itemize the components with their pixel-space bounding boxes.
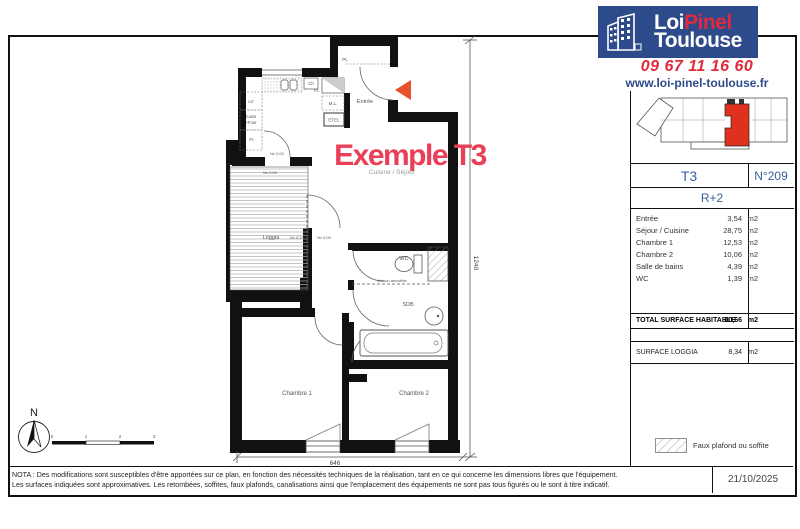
label-nv000-sejour: Nv 0,00 bbox=[263, 170, 278, 175]
unit-type-cell: T3 bbox=[630, 164, 748, 187]
scale-tick-2: 2 bbox=[119, 434, 122, 439]
room-row-chambre2: Chambre 210,06m2 bbox=[636, 250, 788, 261]
bathroom-fixtures bbox=[352, 247, 448, 356]
site-minimap bbox=[633, 90, 793, 158]
room-row-entree: Entrée3,54m2 bbox=[636, 214, 788, 225]
nota-line2: Les surfaces indiquées sont approximativ… bbox=[12, 481, 708, 491]
room-row-chambre1: Chambre 112,53m2 bbox=[636, 238, 788, 249]
label-cuiss: Cuiss bbox=[246, 114, 256, 119]
brand-phone: 09 67 11 16 60 bbox=[614, 58, 780, 76]
date-cell: 21/10/2025 bbox=[713, 467, 793, 492]
building-icon bbox=[604, 10, 646, 54]
label-chambre2: Chambre 2 bbox=[399, 391, 429, 397]
brand-logo: LoiPinel Toulouse bbox=[598, 6, 758, 58]
total-row: TOTAL SURFACE HABITABLE60,66m2 bbox=[636, 317, 788, 328]
nota-text: NOTA : Des modifications sont susceptibl… bbox=[12, 471, 708, 490]
label-fr: Fr. bbox=[249, 137, 254, 142]
label-wc: WC bbox=[399, 256, 408, 262]
scale-tick-1: 1 bbox=[85, 434, 88, 439]
scale-bar: 0 1 2 3 bbox=[51, 434, 156, 445]
plan-title: Exemple T3 bbox=[334, 139, 487, 172]
label-sdb: SDB bbox=[402, 302, 414, 308]
entrance-arrow-icon bbox=[395, 80, 411, 100]
compass-icon: N bbox=[19, 407, 50, 453]
label-cloison: cloison amovible bbox=[377, 278, 407, 283]
loggia-area bbox=[226, 165, 308, 296]
dimension-vertical-label: 1240 bbox=[472, 256, 479, 271]
label-entree: Entrée bbox=[357, 99, 373, 105]
label-pl-small: PL. bbox=[314, 88, 320, 93]
label-chambre1: Chambre 1 bbox=[282, 391, 312, 397]
floor-cell: R+2 bbox=[630, 188, 794, 208]
loggia-surface-row: SURFACE LOGGIA8,34m2 bbox=[636, 349, 788, 360]
brand-contact: 09 67 11 16 60 www.loi-pinel-toulouse.fr bbox=[614, 58, 780, 91]
room-row-wc: WC1,39m2 bbox=[636, 274, 788, 285]
room-row-sejour: Séjour / Cuisine28,75m2 bbox=[636, 226, 788, 237]
legend-swatch bbox=[655, 438, 687, 453]
floor-plan-sheet: 1240 646 N 0 1 2 3 Exemple T3 Cuisine / … bbox=[0, 0, 800, 529]
room-row-sdb: Salle de bains4,39m2 bbox=[636, 262, 788, 273]
label-pl-top: PL bbox=[342, 57, 348, 62]
label-nv000-loggia: Nv 0,00 bbox=[317, 235, 332, 240]
label-ch: Ch bbox=[308, 81, 314, 86]
plan-subtitle: Cuisine / Séjour bbox=[369, 169, 416, 176]
legend-label: Faux plafond ou soffite bbox=[693, 441, 769, 450]
scale-tick-3: 3 bbox=[153, 434, 156, 439]
dimension-horizontal-label: 646 bbox=[330, 460, 341, 467]
compass-north-label: N bbox=[30, 407, 38, 419]
label-ml: M.L. bbox=[329, 101, 338, 106]
label-loggia: Loggia bbox=[263, 235, 280, 241]
label-etel: ETEL bbox=[328, 118, 340, 123]
scale-tick-0: 0 bbox=[51, 434, 54, 439]
label-nv010: Nv 0,10 bbox=[290, 235, 305, 240]
lot-number-cell: N°209 bbox=[748, 164, 794, 187]
brand-website: www.loi-pinel-toulouse.fr bbox=[614, 76, 780, 90]
label-four: +Four bbox=[245, 120, 257, 125]
label-nv000-kitchen: Nv 0,00 bbox=[270, 151, 285, 156]
brand-name-toulouse: Toulouse bbox=[654, 32, 742, 50]
label-lv: LV bbox=[248, 99, 253, 104]
nota-line1: NOTA : Des modifications sont susceptibl… bbox=[12, 471, 708, 481]
